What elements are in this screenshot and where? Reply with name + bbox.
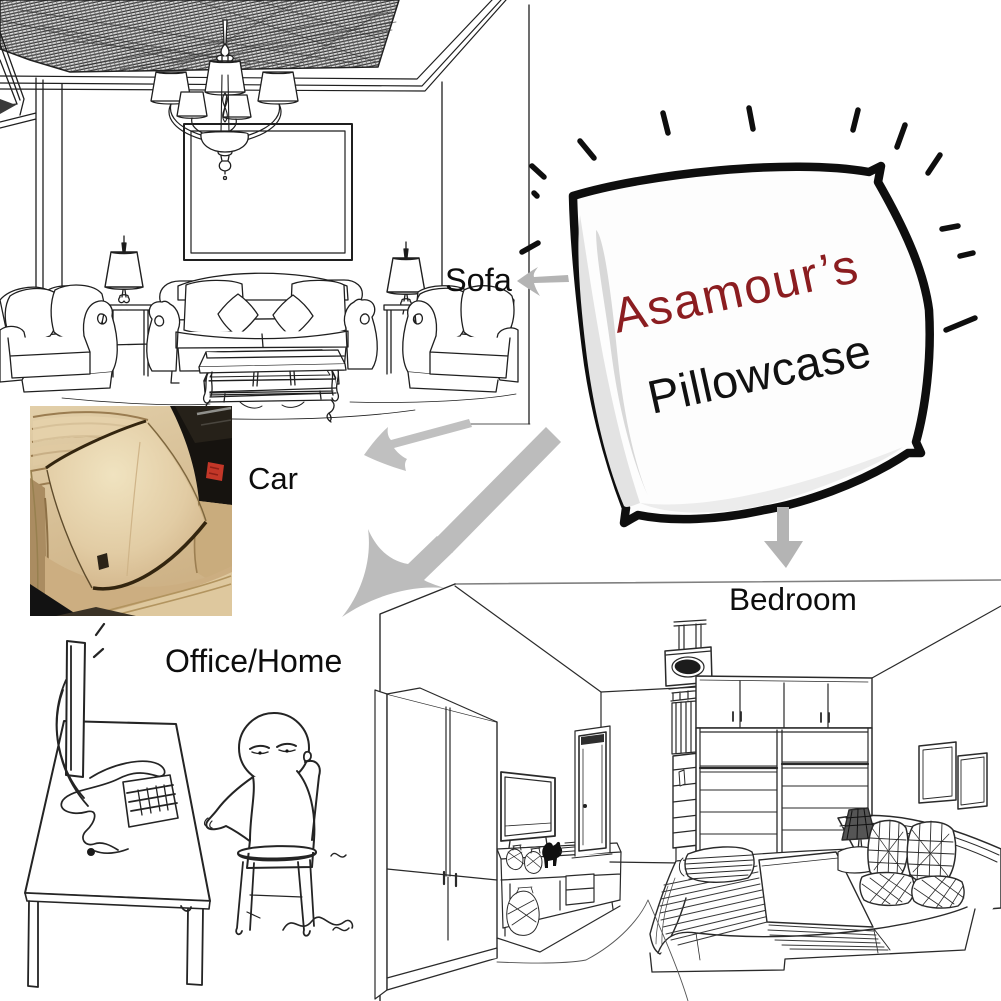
svg-text:Bedroom: Bedroom: [729, 581, 857, 617]
svg-text:Office/Home: Office/Home: [165, 643, 342, 679]
svg-text:Car: Car: [248, 461, 298, 496]
svg-text:Sofa: Sofa: [445, 262, 513, 298]
